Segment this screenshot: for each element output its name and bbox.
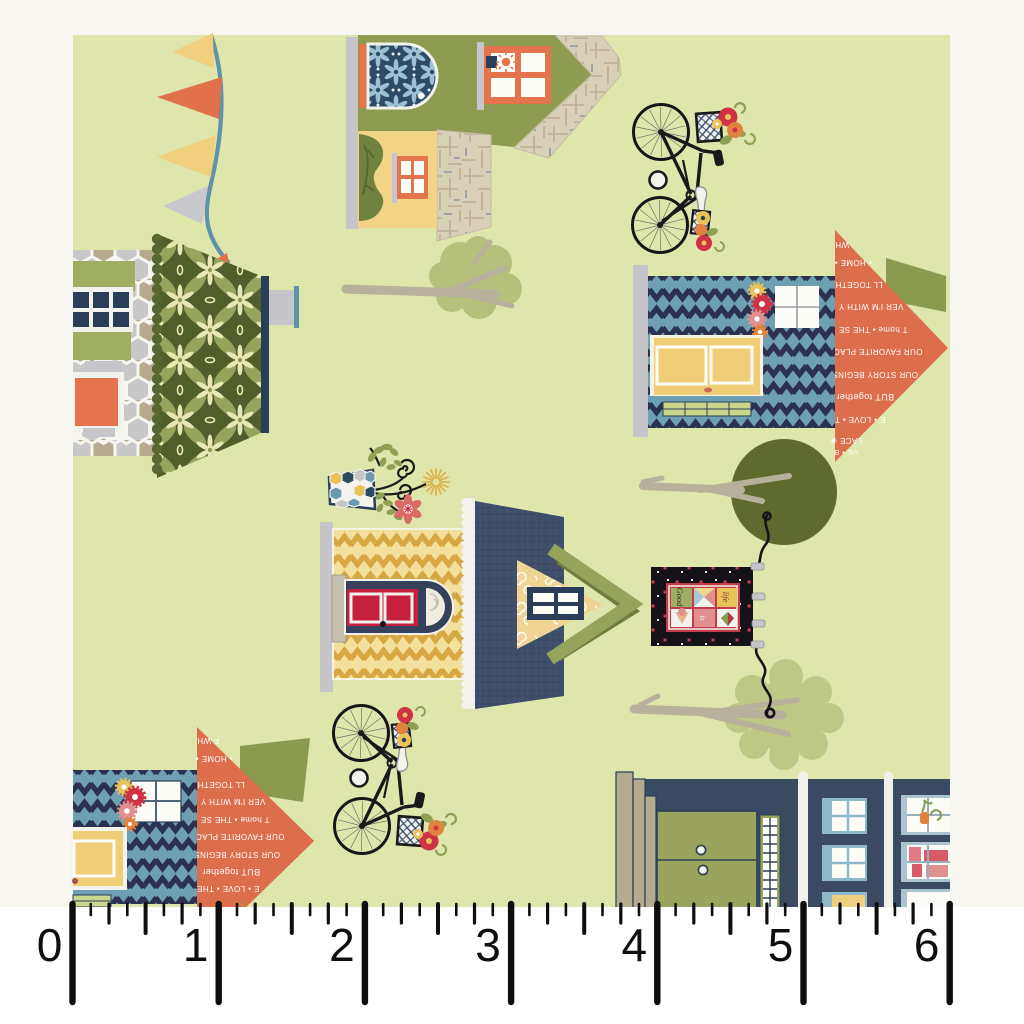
svg-text:Good: Good bbox=[675, 588, 685, 608]
svg-text:6: 6 bbox=[914, 919, 940, 971]
svg-text:0: 0 bbox=[37, 919, 63, 971]
svg-text:VER I'M WITH Y: VER I'M WITH Y bbox=[838, 302, 903, 311]
svg-text:1: 1 bbox=[183, 919, 209, 971]
svg-text:WH: WH bbox=[835, 240, 849, 249]
svg-text:BUT together: BUT together bbox=[836, 392, 894, 402]
svg-text:OUR STORY BEGINS: OUR STORY BEGINS bbox=[194, 850, 280, 859]
svg-text:E • LOVE • THE: E • LOVE • THE bbox=[197, 884, 260, 893]
svg-text:LL TOGETH: LL TOGETH bbox=[197, 780, 244, 789]
svg-text:BUT together: BUT together bbox=[202, 867, 260, 877]
svg-text:T home • THE SE: T home • THE SE bbox=[839, 325, 908, 334]
svg-text:LACE ❀: LACE ❀ bbox=[830, 436, 862, 445]
svg-text:2: 2 bbox=[329, 919, 355, 971]
svg-text:4: 4 bbox=[622, 919, 648, 971]
svg-text:VER I'M WITH Y: VER I'M WITH Y bbox=[200, 797, 265, 806]
svg-text:is: is bbox=[698, 615, 708, 621]
svg-text:VE • B: VE • B bbox=[834, 448, 858, 457]
svg-text:3: 3 bbox=[475, 919, 501, 971]
svg-text:5: 5 bbox=[768, 919, 794, 971]
svg-text:OUR STORY BEGINS: OUR STORY BEGINS bbox=[832, 370, 918, 379]
svg-text:OUR FAVORITE PLAC: OUR FAVORITE PLAC bbox=[196, 832, 285, 841]
svg-text:OUR FAVORITE PLAC: OUR FAVORITE PLAC bbox=[834, 347, 923, 356]
svg-text:• HOME •: • HOME • bbox=[195, 754, 232, 763]
svg-text:• HOME •: • HOME • bbox=[834, 258, 871, 267]
svg-text:T home • THE SE: T home • THE SE bbox=[201, 815, 270, 824]
svg-text:F WH: F WH bbox=[197, 736, 219, 745]
svg-text:life: life bbox=[721, 592, 731, 603]
svg-text:LL TOGETH: LL TOGETH bbox=[835, 280, 882, 289]
